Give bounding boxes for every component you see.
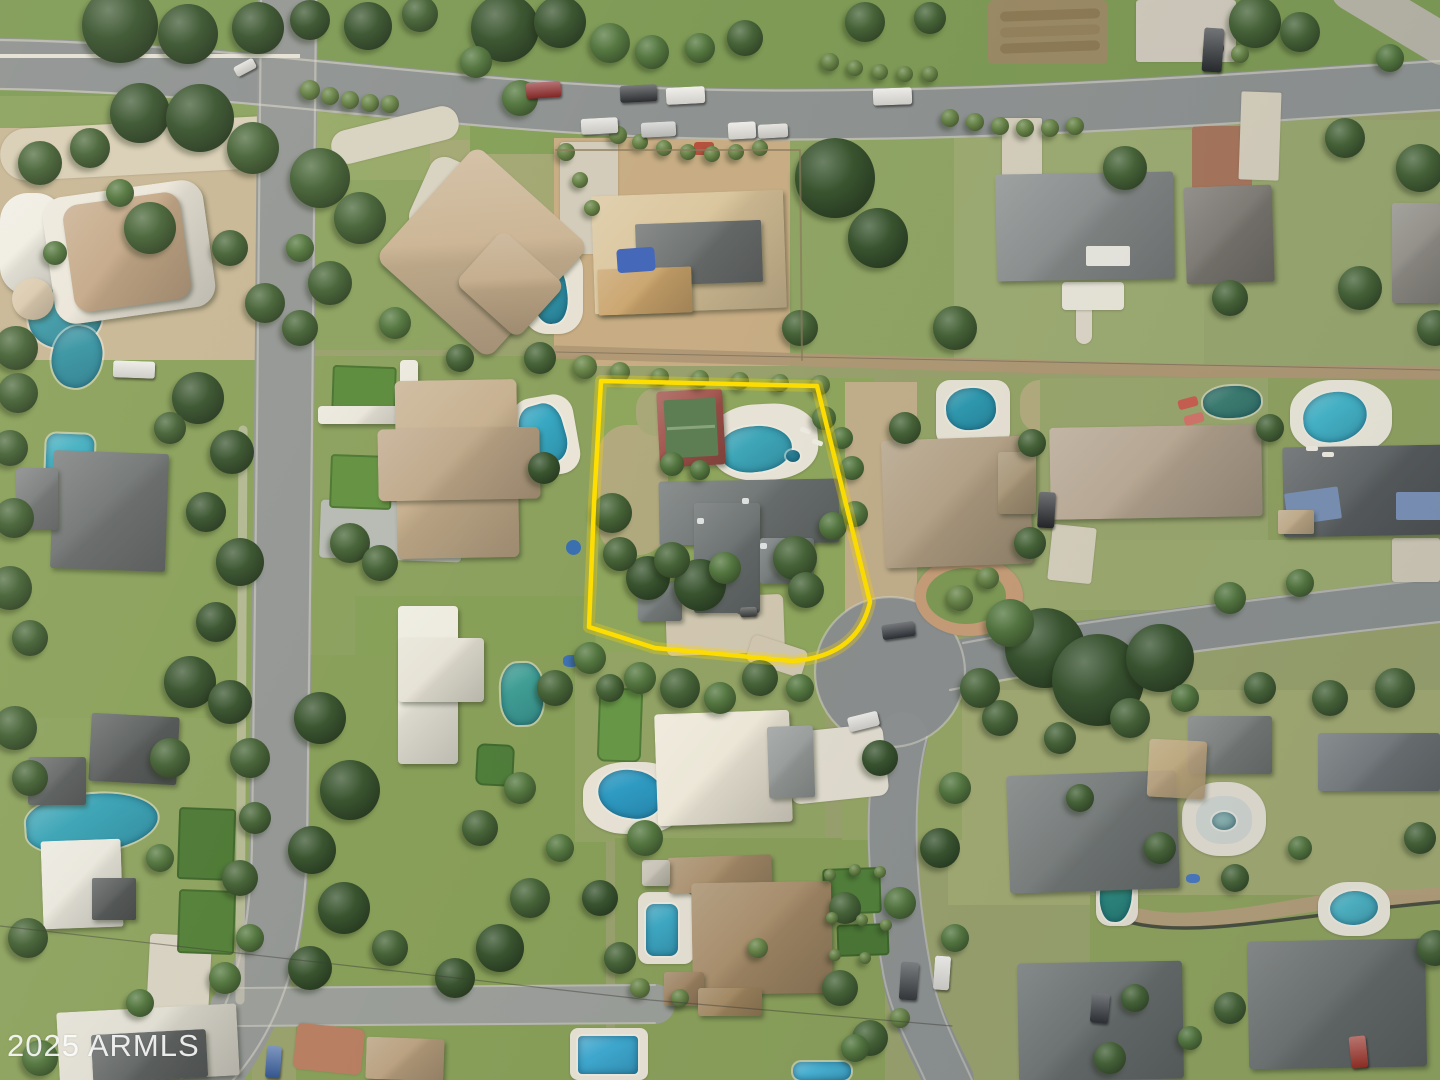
aerial-photo: 2025 ARMLS	[0, 0, 1440, 1080]
utility-line	[556, 352, 1440, 370]
construction-fence	[556, 150, 802, 360]
property-boundary	[589, 381, 870, 661]
boundary-layer	[0, 0, 1440, 1080]
power-line	[0, 926, 952, 1026]
watermark-text: 2025 ARMLS	[7, 1028, 200, 1064]
